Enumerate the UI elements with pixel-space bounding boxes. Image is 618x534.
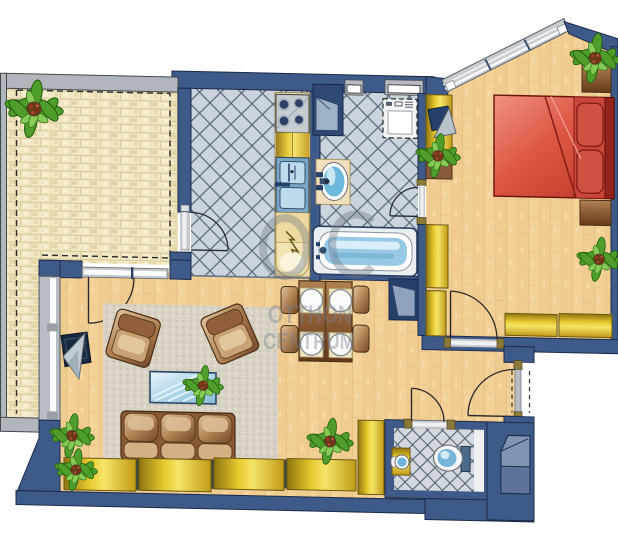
svg-text:OTTHON: OTTHON — [268, 301, 352, 329]
svg-text:CENTRUM: CENTRUM — [263, 329, 355, 354]
